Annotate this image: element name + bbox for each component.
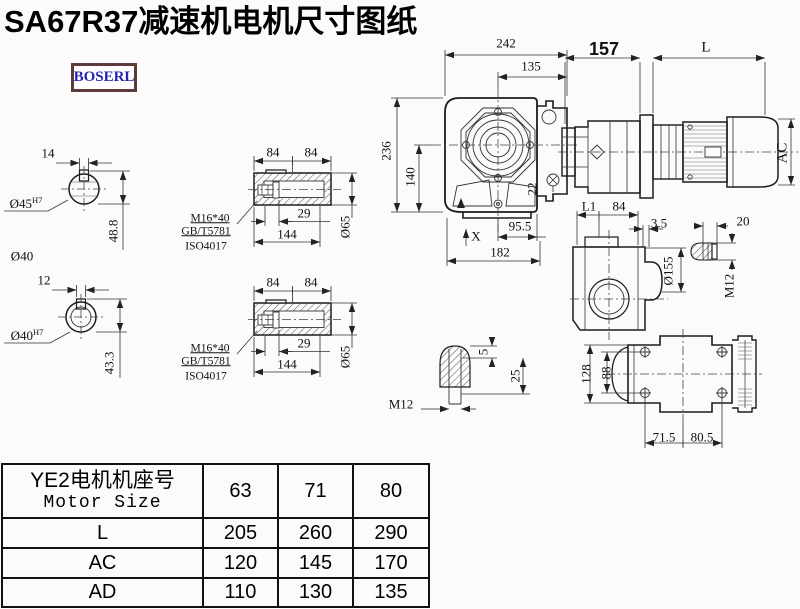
table-row-AD: AD 110 130 135 (2, 578, 429, 607)
dim-hub-dia: Ø40 (11, 250, 33, 263)
table-cell: 120 (203, 548, 278, 578)
dim-top-715: 71.5 (653, 431, 676, 444)
table-cell: 170 (353, 548, 429, 578)
dim-top-128: 128 (580, 364, 593, 384)
dim-front-135: 135 (521, 60, 541, 73)
dim-hollow-top-84b: 84 (305, 146, 318, 159)
drawing-canvas: SA67R37减速机电机尺寸图纸 BOSERL (0, 0, 800, 609)
table-cell: 205 (203, 518, 278, 548)
dim-front-955: 95.5 (509, 220, 532, 233)
table-cell: 130 (278, 578, 353, 607)
table-cell: 290 (353, 518, 429, 548)
dim-side-84: 84 (613, 200, 626, 213)
dim-motor-157: 157 (589, 40, 619, 58)
dim-front-x-mark: X (471, 230, 480, 243)
table-size-71: 71 (278, 464, 353, 518)
table-header-cn: YE2电机机座号 (3, 468, 202, 494)
label-hollow-bottom-gb-text: GB/T5781 (181, 355, 230, 367)
table-header-motor-size: YE2电机机座号 Motor Size (2, 464, 203, 518)
dim-hollow-top-dia: Ø65 (339, 216, 352, 238)
label-hollow-top-gb: GB/T5781 (181, 226, 230, 238)
dim-keyway-depth-top: 48.8 (107, 220, 120, 243)
dim-side-dia155: Ø155 (662, 257, 675, 286)
table-size-80: 80 (353, 464, 429, 518)
dim-hollow-top-144: 144 (277, 228, 297, 241)
dim-keyway-width-bottom: 12 (38, 274, 51, 287)
dim-plug-5: 5 (477, 349, 490, 356)
fig-motor-linework (558, 58, 798, 198)
dim-top-88: 88 (600, 367, 613, 380)
dim-bore-top: Ø45H7 (10, 196, 43, 210)
dim-side-L1: L1 (582, 200, 596, 213)
table-size-63: 63 (203, 464, 278, 518)
dim-bore-bottom-value: Ø40 (11, 328, 33, 343)
dim-hollow-bottom-29: 29 (298, 337, 311, 350)
dim-side-20: 20 (737, 215, 750, 228)
dim-hollow-bottom-84a: 84 (267, 276, 280, 289)
dim-keyway-width-top: 14 (42, 147, 55, 160)
table-row-label: L (2, 518, 203, 548)
dim-motor-L: L (701, 41, 710, 56)
dim-hollow-top-29: 29 (298, 207, 311, 220)
table-row-L: L 205 260 290 (2, 518, 429, 548)
label-hollow-top-gb-text: GB/T5781 (181, 225, 230, 237)
dim-plug-m12: M12 (389, 398, 414, 411)
label-hollow-top-bolt-text: M16*40 (191, 212, 230, 224)
table-header-en: Motor Size (3, 494, 202, 514)
dim-front-22: 22 (526, 183, 539, 196)
table-cell: 135 (353, 578, 429, 607)
label-hollow-bottom-bolt: M16*40 (191, 343, 230, 355)
table-cell: 260 (278, 518, 353, 548)
dim-front-242: 242 (496, 37, 516, 50)
fig-front-linework (391, 50, 578, 266)
table-header-row: YE2电机机座号 Motor Size 63 71 80 (2, 464, 429, 518)
dim-side-35: 3.5 (651, 217, 667, 230)
dim-front-140: 140 (404, 167, 417, 187)
label-hollow-top-bolt: M16*40 (191, 213, 230, 225)
dim-bore-top-value: Ø45 (10, 196, 32, 211)
table-cell: 145 (278, 548, 353, 578)
table-row-AC: AC 120 145 170 (2, 548, 429, 578)
dim-bore-bottom-tolerance: H7 (33, 327, 43, 337)
dim-side-m12: M12 (723, 274, 736, 299)
dim-keyway-depth-bottom: 43.3 (103, 352, 116, 375)
dim-hollow-bottom-dia: Ø65 (339, 346, 352, 368)
label-hollow-bottom-iso: ISO4017 (185, 371, 227, 383)
motor-size-table: YE2电机机座号 Motor Size 63 71 80 L 205 260 2… (1, 463, 430, 608)
dim-bore-top-tolerance: H7 (32, 195, 42, 205)
label-hollow-top-iso: ISO4017 (185, 241, 227, 253)
dim-front-236: 236 (380, 141, 393, 161)
dim-motor-AC: AC (776, 143, 791, 164)
table-row-label: AC (2, 548, 203, 578)
dim-hollow-top-84a: 84 (267, 146, 280, 159)
dim-hollow-bottom-144: 144 (277, 358, 297, 371)
dim-hollow-bottom-84b: 84 (305, 276, 318, 289)
label-hollow-bottom-gb: GB/T5781 (181, 356, 230, 368)
table-cell: 110 (203, 578, 278, 607)
label-hollow-bottom-bolt-text: M16*40 (191, 342, 230, 354)
dim-plug-25: 25 (509, 370, 522, 383)
table-row-label: AD (2, 578, 203, 607)
dim-top-805: 80.5 (691, 431, 714, 444)
dim-front-182: 182 (490, 246, 510, 259)
dim-bore-bottom: Ø40H7 (11, 328, 44, 342)
